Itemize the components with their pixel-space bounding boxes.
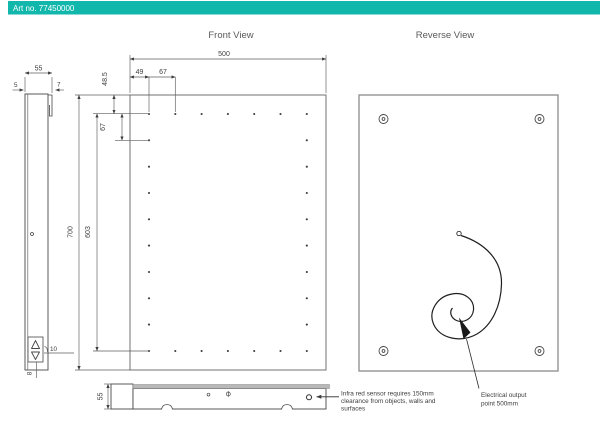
led-dot [174, 113, 176, 115]
led-dot [227, 350, 229, 352]
led-dot [306, 324, 308, 326]
infra-red-note-line2: clearance from objects, walls and [341, 398, 436, 405]
reverse-view-title: Reverse View [416, 30, 475, 41]
infra-red-note-line3: surfaces [341, 406, 365, 413]
electrical-note-line1: Electrical output [481, 392, 527, 399]
led-dot [148, 192, 150, 194]
dim-glass-thickness: 5 [14, 82, 18, 89]
touch-switch-box [28, 337, 43, 362]
technical-drawing-page: Art no. 77450000 Front View Reverse View… [0, 0, 600, 441]
led-dot [148, 218, 150, 220]
dim-top-offset: 48.5 [102, 72, 109, 86]
led-dot [201, 113, 203, 115]
dim-row-gap: 67 [100, 123, 107, 131]
dim-front-width: 500 [218, 51, 230, 58]
dim-switch-offset: 10 [50, 346, 58, 353]
dim-side-depth: 55 [35, 66, 43, 73]
dim-left-offset: 49 [136, 69, 144, 76]
side-view-body [25, 94, 48, 370]
dim-col-gap: 67 [159, 69, 167, 76]
led-dot [306, 166, 308, 168]
reverse-view [359, 95, 558, 371]
front-view-title: Front View [208, 30, 253, 41]
header-background [8, 1, 600, 15]
led-dot [306, 350, 308, 352]
wall-bracket [48, 95, 52, 116]
bottom-view: 55 [98, 384, 330, 410]
front-view: 500 49 67 48.5 67 700 603 [68, 51, 327, 370]
led-dot [148, 166, 150, 168]
led-dot [253, 113, 255, 115]
led-dot [306, 297, 308, 299]
infra-red-note-line1: Infra red sensor requires 150mm [341, 391, 434, 398]
front-mirror-outline [130, 95, 326, 370]
led-dot [148, 297, 150, 299]
drawing-canvas: Art no. 77450000 Front View Reverse View… [0, 0, 600, 441]
led-dot [174, 350, 176, 352]
electrical-note-line2: point 500mm [481, 401, 518, 408]
led-dot [306, 271, 308, 273]
bottom-view-body [133, 389, 326, 410]
led-dot [306, 218, 308, 220]
led-dot [148, 245, 150, 247]
dim-bottom-depth: 55 [98, 393, 105, 401]
led-dot [306, 192, 308, 194]
led-dot [279, 350, 281, 352]
led-dot [253, 350, 255, 352]
led-dot [279, 113, 281, 115]
led-dot [306, 245, 308, 247]
bottom-view-end-cap [111, 384, 133, 409]
dim-grid-height: 603 [85, 226, 92, 238]
led-dot [201, 350, 203, 352]
infra-red-annotation: Infra red sensor requires 150mm clearanc… [317, 391, 436, 413]
led-dot [148, 271, 150, 273]
bottom-view-dimensions: 55 [98, 384, 112, 409]
led-dot [306, 113, 308, 115]
led-dot [227, 113, 229, 115]
dim-bracket-thickness: 7 [57, 82, 61, 89]
art-number-label: Art no. 77450000 [13, 4, 75, 13]
led-dot [148, 324, 150, 326]
side-view: 55 5 7 10 8 [13, 66, 75, 379]
header-bar: Art no. 77450000 [8, 1, 600, 15]
led-dot [306, 139, 308, 141]
reverse-panel-outline [359, 95, 558, 371]
dim-switch-width: 8 [27, 371, 34, 375]
dim-front-height: 700 [68, 226, 75, 238]
bottom-view-glass-strip [133, 385, 330, 389]
